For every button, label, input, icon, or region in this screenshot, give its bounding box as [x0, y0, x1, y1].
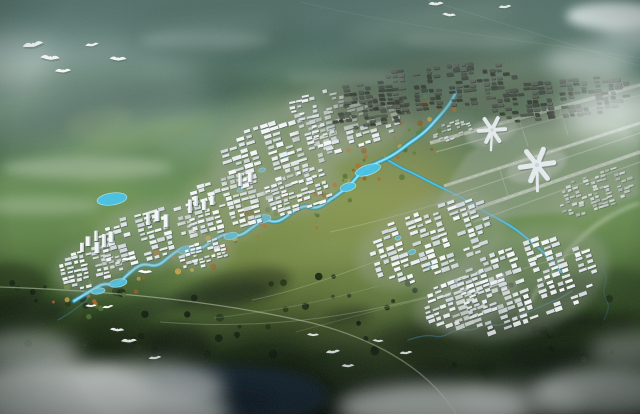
film-grain [0, 0, 640, 414]
masterplan-scene [0, 0, 640, 414]
layer-post [0, 0, 640, 414]
masterplan-aerial-image [0, 0, 640, 414]
